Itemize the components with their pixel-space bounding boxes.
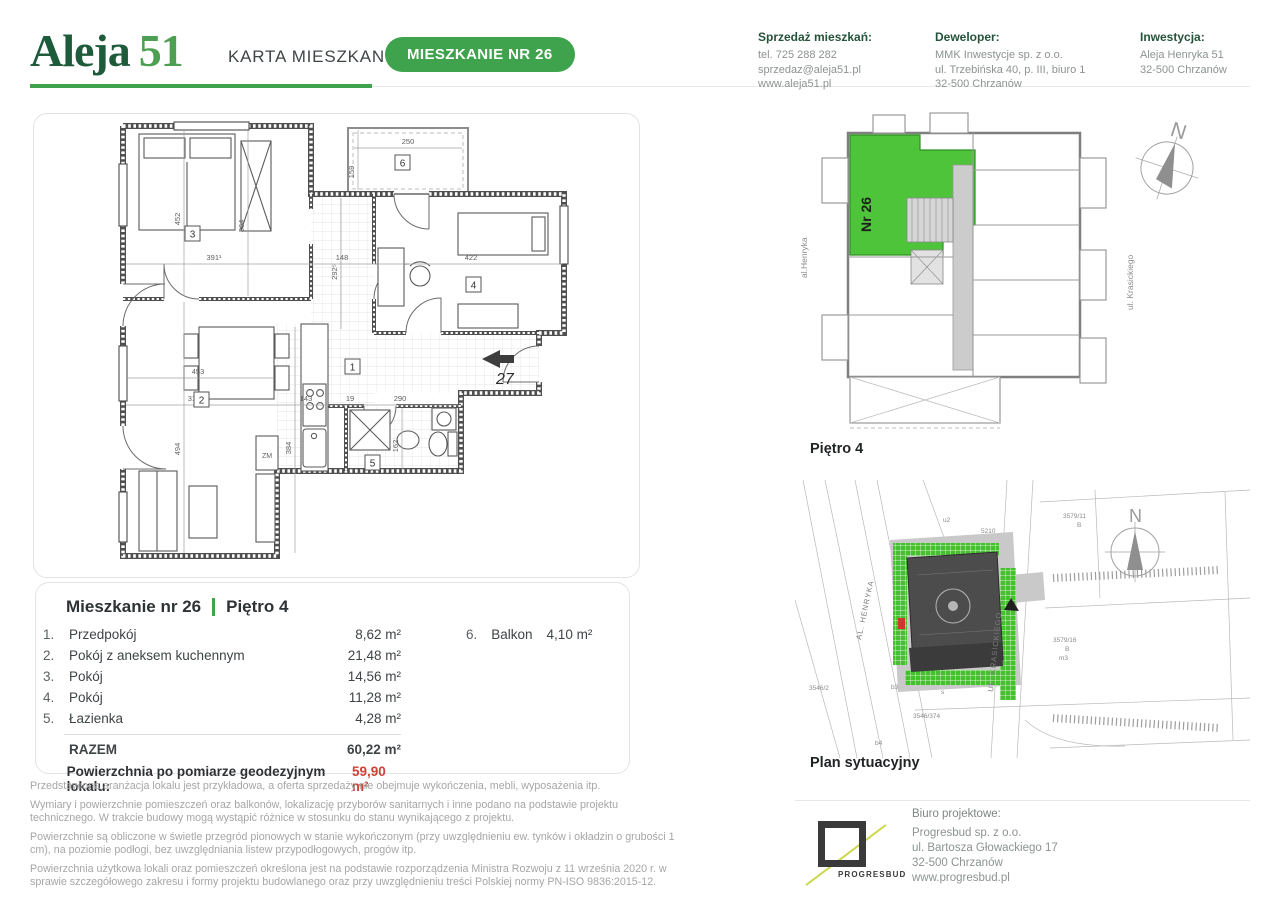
entrance-marker bbox=[898, 618, 905, 629]
row-area: 21,48 m² bbox=[329, 648, 401, 663]
contact-sales-title: Sprzedaż mieszkań: bbox=[758, 30, 928, 44]
room-number-label: 4 bbox=[471, 281, 477, 292]
contact-sales-email: sprzedaz@aleja51.pl bbox=[758, 63, 928, 78]
compass-north-label: N bbox=[1129, 506, 1142, 526]
dimension-label: 148 bbox=[336, 253, 349, 262]
room-number-4: 4 bbox=[466, 277, 481, 292]
dimension-label: 19 bbox=[346, 394, 354, 403]
compass-icon: N bbox=[1125, 110, 1213, 209]
room-number-label: 6 bbox=[400, 159, 406, 170]
site-building bbox=[907, 552, 1003, 672]
parcel-label: 3579/16 bbox=[1053, 637, 1077, 644]
contact-investment-title: Inwestycja: bbox=[1140, 30, 1280, 44]
dimension-label: 384 bbox=[284, 442, 293, 455]
row-number: 1. bbox=[43, 627, 69, 642]
street-label-henryka: AL. HENRYKA bbox=[854, 579, 875, 640]
contact-sales: Sprzedaż mieszkań: tel. 725 288 282 sprz… bbox=[758, 30, 928, 92]
row-area: 4,10 m² bbox=[547, 627, 593, 642]
table-title-floor: Piętro 4 bbox=[226, 597, 288, 617]
parcel-label: m3 bbox=[1059, 655, 1068, 662]
floor-plan-card: 250 159 391¹ 148 422 452 364 292⁵ 453 31… bbox=[33, 113, 640, 578]
design-office-website: www.progresbud.pl bbox=[912, 871, 1132, 886]
dimension-label: 453 bbox=[192, 367, 205, 376]
dimension-label: 494 bbox=[173, 443, 182, 456]
parcel-label: b3 bbox=[891, 684, 899, 691]
highlighted-unit-label: Nr 26 bbox=[858, 197, 874, 232]
row-name: Balkon bbox=[491, 627, 532, 642]
design-office-info: Biuro projektowe: Progresbud sp. z o.o. … bbox=[912, 808, 1132, 886]
contact-developer-title: Deweloper: bbox=[935, 30, 1135, 44]
design-office-address1: ul. Bartosza Głowackiego 17 bbox=[912, 841, 1132, 856]
table-title: Mieszkanie nr 26 Piętro 4 bbox=[66, 597, 288, 617]
dimension-label: 452 bbox=[173, 213, 182, 226]
terrace bbox=[850, 377, 1000, 428]
site-plan-caption: Plan sytuacyjny bbox=[810, 755, 920, 771]
brand-logo-name: Aleja bbox=[30, 25, 130, 76]
total-label: RAZEM bbox=[69, 742, 329, 757]
compass-icon: N bbox=[1105, 506, 1165, 582]
dimension-label: 250 bbox=[402, 137, 415, 146]
design-office-title: Biuro projektowe: bbox=[912, 808, 1132, 820]
dimension-label: 159 bbox=[347, 166, 356, 179]
contact-investment-address1: Aleja Henryka 51 bbox=[1140, 48, 1280, 63]
parcel-label: u2 bbox=[943, 517, 951, 524]
row-area: 11,28 m² bbox=[329, 690, 401, 705]
utility-label-zm: ZM bbox=[262, 453, 272, 460]
table-row: 2. Pokój z aneksem kuchennym 21,48 m² bbox=[43, 645, 401, 666]
contact-investment: Inwestycja: Aleja Henryka 51 32-500 Chrz… bbox=[1140, 30, 1280, 77]
page-title: KARTA MIESZKANIA bbox=[228, 47, 403, 67]
parcel-label: 3579/11 bbox=[1063, 513, 1086, 520]
brand-logo: Aleja51 bbox=[30, 24, 183, 77]
room-number-3: 3 bbox=[185, 226, 200, 241]
dimension-label: 162 bbox=[391, 440, 400, 453]
row-area: 14,56 m² bbox=[329, 669, 401, 684]
design-office-name: Progresbud sp. z o.o. bbox=[912, 826, 1132, 841]
street-label-krasickiego: ul. Krasickiego bbox=[1125, 254, 1135, 310]
logo-wordmark: PROGRESBUD bbox=[838, 870, 906, 879]
header-accent-bar bbox=[30, 84, 372, 88]
disclaimer-paragraph: Powierzchnie są obliczone w świetle prze… bbox=[30, 831, 675, 857]
disclaimer-paragraph: Przedstawiona aranżacja lokalu jest przy… bbox=[30, 780, 675, 793]
dimension-label: 290 bbox=[394, 394, 407, 403]
room-number-label: 3 bbox=[190, 230, 196, 241]
table-row: 3. Pokój 14,56 m² bbox=[43, 666, 401, 687]
row-number: 4. bbox=[43, 690, 69, 705]
footer-divider bbox=[795, 800, 1250, 801]
dimension-label: 391¹ bbox=[206, 253, 222, 262]
row-area: 4,28 m² bbox=[329, 711, 401, 726]
dimension-label: 364 bbox=[237, 220, 246, 233]
room-number-6: 6 bbox=[395, 155, 410, 170]
row-name: Pokój bbox=[69, 669, 329, 684]
row-area: 8,62 m² bbox=[329, 627, 401, 642]
disclaimers: Przedstawiona aranżacja lokalu jest przy… bbox=[30, 780, 675, 895]
room-number-label: 5 bbox=[370, 459, 376, 470]
compass-north-label: N bbox=[1168, 118, 1190, 145]
contact-developer: Deweloper: MMK Inwestycje sp. z o.o. ul.… bbox=[935, 30, 1135, 92]
row-name: Pokój bbox=[69, 690, 329, 705]
design-office-logo: PROGRESBUD bbox=[800, 812, 920, 892]
dimension-label: 143 bbox=[300, 394, 313, 403]
row-number: 6. bbox=[466, 627, 477, 642]
floor-plan: 250 159 391¹ 148 422 452 364 292⁵ 453 31… bbox=[34, 114, 638, 576]
building-plan-caption: Piętro 4 bbox=[810, 441, 863, 457]
contact-sales-phone: tel. 725 288 282 bbox=[758, 48, 928, 63]
parcel-label: B bbox=[1077, 522, 1081, 529]
row-name: Łazienka bbox=[69, 711, 329, 726]
parcel-label: B bbox=[1065, 646, 1069, 653]
row-name: Pokój z aneksem kuchennym bbox=[69, 648, 329, 663]
brand-logo-number: 51 bbox=[139, 25, 183, 76]
room-number-5: 5 bbox=[365, 455, 380, 470]
dimension-label: 422 bbox=[465, 253, 478, 262]
contact-developer-address2: 32-500 Chrzanów bbox=[935, 77, 1135, 92]
site-plan: 5210 u2 3579/11 B 3579/16 B m3 3546/374 … bbox=[795, 480, 1250, 758]
disclaimer-paragraph: Powierzchnia użytkowa lokali oraz pomies… bbox=[30, 863, 675, 889]
table-total-row: RAZEM 60,22 m² bbox=[43, 739, 401, 760]
table-total-divider bbox=[64, 734, 401, 735]
balcony-row: 6. Balkon 4,10 m² bbox=[466, 627, 592, 642]
parcel-label: 3546/2 bbox=[809, 685, 829, 692]
entry-floor bbox=[374, 333, 539, 393]
parcel-label: 3546/374 bbox=[913, 713, 940, 720]
table-row: 5. Łazienka 4,28 m² bbox=[43, 708, 401, 729]
unit-number-badge: MIESZKANIE NR 26 bbox=[385, 37, 575, 72]
table-title-unit: Mieszkanie nr 26 bbox=[66, 597, 201, 617]
neighbour-unit-label: 27 bbox=[495, 371, 515, 388]
street-label-henryka: al.Henryka bbox=[799, 237, 809, 278]
room-number-label: 1 bbox=[350, 363, 356, 374]
parcel-label: 5210 bbox=[981, 528, 996, 535]
room-list: 1. Przedpokój 8,62 m² 2. Pokój z aneksem… bbox=[43, 624, 401, 794]
contact-developer-address1: ul. Trzebińska 40, p. III, biuro 1 bbox=[935, 63, 1135, 78]
area-table-card: Mieszkanie nr 26 Piętro 4 1. Przedpokój … bbox=[35, 582, 630, 774]
row-number: 3. bbox=[43, 669, 69, 684]
table-row: 1. Przedpokój 8,62 m² bbox=[43, 624, 401, 645]
row-number: 2. bbox=[43, 648, 69, 663]
room-number-2: 2 bbox=[194, 392, 209, 407]
table-row: 4. Pokój 11,28 m² bbox=[43, 687, 401, 708]
contact-investment-address2: 32-500 Chrzanów bbox=[1140, 63, 1280, 78]
table-title-separator bbox=[212, 598, 215, 616]
logo-square bbox=[818, 821, 866, 867]
contact-developer-name: MMK Inwestycje sp. z o.o. bbox=[935, 48, 1135, 63]
room-number-1: 1 bbox=[345, 359, 360, 374]
parcel-label: b4 bbox=[875, 740, 883, 747]
building-plan: Nr 26 al.Henryka ul. Krasickiego bbox=[795, 110, 1250, 475]
disclaimer-paragraph: Wymiary i powierzchnie pomieszczeń oraz … bbox=[30, 799, 675, 825]
parcel-label: s bbox=[941, 689, 945, 696]
row-name: Przedpokój bbox=[69, 627, 329, 642]
design-office-address2: 32-500 Chrzanów bbox=[912, 856, 1132, 871]
row-number: 5. bbox=[43, 711, 69, 726]
room-number-label: 2 bbox=[199, 396, 205, 407]
dimension-label: 292⁵ bbox=[330, 264, 339, 280]
contact-sales-website: www.aleja51.pl bbox=[758, 77, 928, 92]
total-area: 60,22 m² bbox=[329, 742, 401, 757]
